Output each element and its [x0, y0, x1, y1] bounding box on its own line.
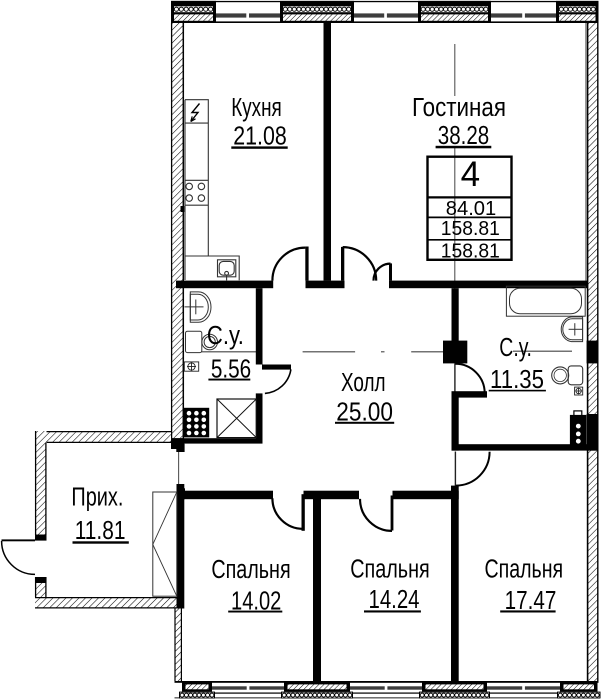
svg-text:Спальня: Спальня [485, 556, 564, 584]
svg-text:14.24: 14.24 [369, 586, 420, 614]
svg-text:Прих.: Прих. [71, 484, 123, 512]
svg-text:21.08: 21.08 [233, 122, 287, 150]
svg-text:С.у.: С.у. [499, 334, 532, 362]
svg-text:Кухня: Кухня [231, 94, 282, 122]
svg-text:С.у.: С.у. [207, 322, 244, 350]
svg-text:Спальня: Спальня [211, 556, 290, 584]
svg-text:11.81: 11.81 [75, 517, 126, 545]
svg-text:Холл: Холл [341, 369, 386, 397]
svg-text:4: 4 [461, 155, 480, 194]
svg-text:Гостиная: Гостиная [412, 94, 506, 122]
svg-text:Спальня: Спальня [350, 556, 430, 584]
svg-text:158.81: 158.81 [441, 239, 500, 262]
svg-text:158.81: 158.81 [441, 217, 500, 240]
